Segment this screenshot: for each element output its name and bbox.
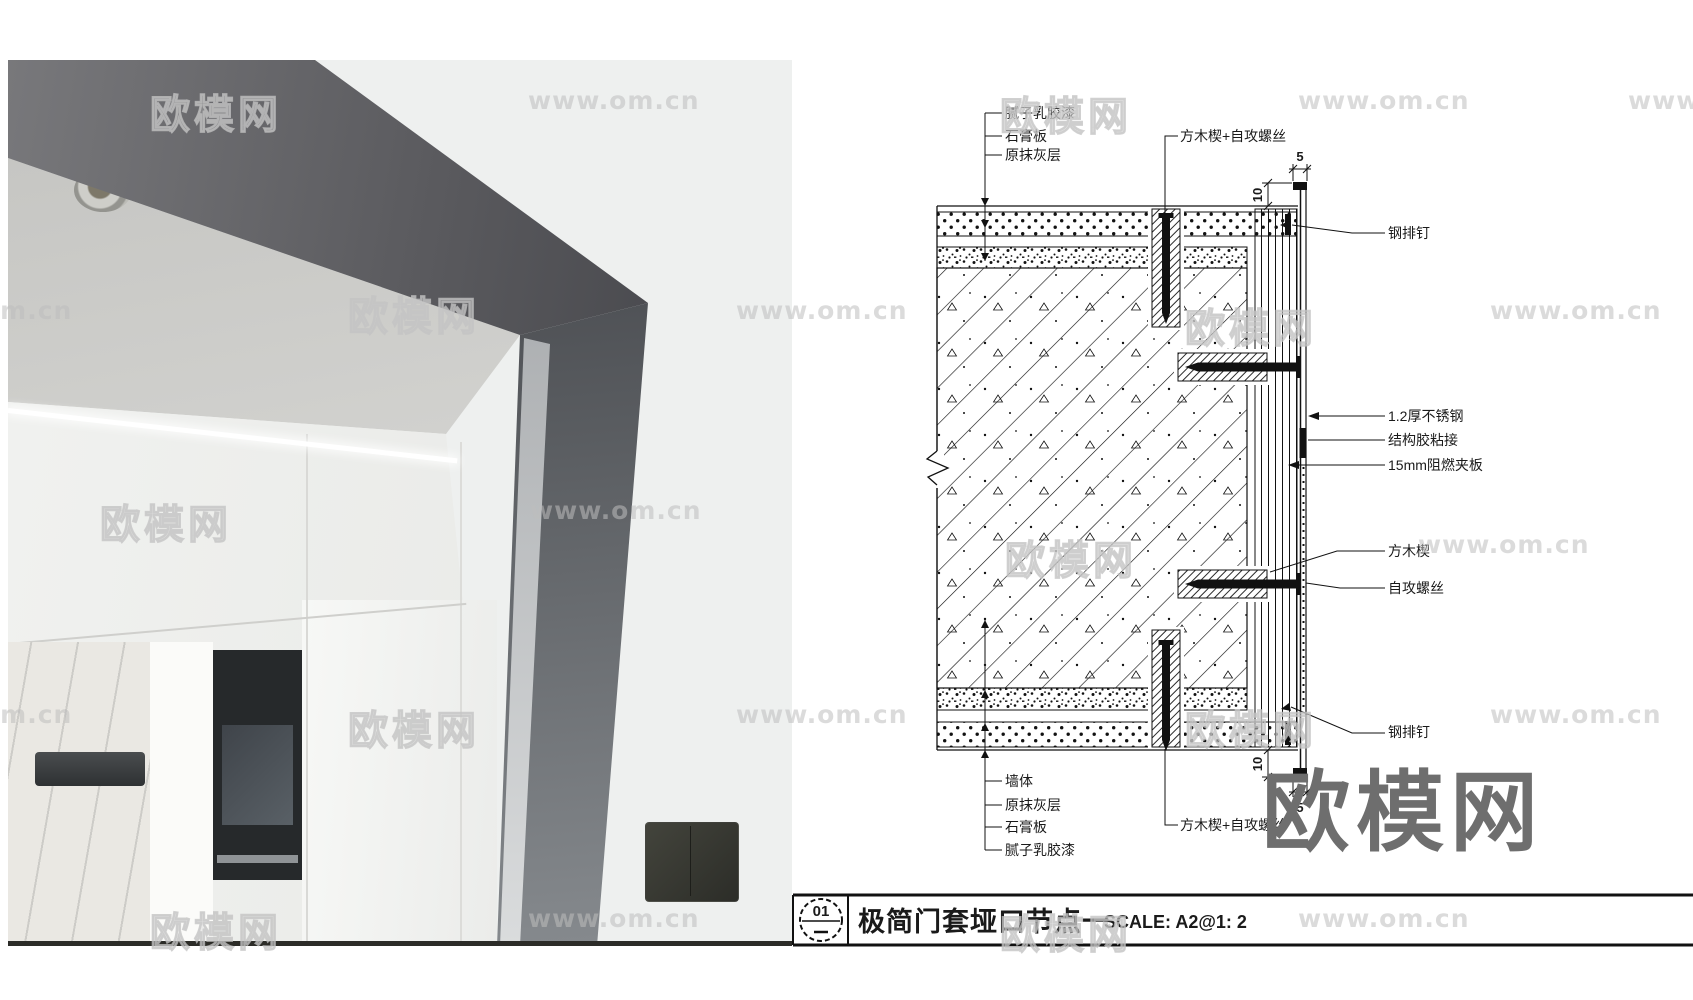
reference-photo	[8, 60, 792, 946]
dim-top-offset: 10	[1250, 188, 1265, 202]
dim-bottom-offset: 10	[1250, 757, 1265, 771]
detail-number: 01	[813, 903, 830, 920]
plywood-layer	[1255, 209, 1297, 747]
photo-cabinet-seam	[306, 434, 308, 946]
label-fire-plywood: 15mm阻燃夹板	[1388, 457, 1483, 473]
label-wood-wedge: 方木楔	[1388, 543, 1430, 559]
label-plaster-bottom: 原抹灰层	[1005, 797, 1061, 813]
photo-microwave-handle	[217, 855, 298, 863]
photo-cabinet-seam	[460, 442, 462, 946]
wall-section	[937, 206, 1298, 750]
photo-bottom-edge	[8, 941, 792, 946]
photo-tall-cabinet	[302, 600, 497, 946]
label-self-tap-screw: 自攻螺丝	[1388, 580, 1444, 596]
label-brad-nail-top: 钢排钉	[1388, 225, 1430, 241]
photo-light-switch-divider	[690, 826, 691, 896]
detail-title: 极简门套垭口节点一	[858, 906, 1110, 937]
label-brad-nail-bottom: 钢排钉	[1388, 724, 1430, 740]
photo-marble-backsplash	[8, 642, 150, 946]
structural-adhesive-pad	[1300, 428, 1307, 458]
photo-light-switch	[645, 822, 739, 902]
page: 10 5 10 5 腻子乳胶漆 石膏板 原抹灰层	[0, 0, 1693, 1000]
dim-bottom-return: 5	[1296, 800, 1303, 815]
detail-drawing: 10 5 10 5 腻子乳胶漆 石膏板 原抹灰层	[792, 55, 1693, 955]
label-putty-paint-bottom: 腻子乳胶漆	[1005, 842, 1075, 858]
label-putty-paint-top: 腻子乳胶漆	[1005, 105, 1075, 121]
label-stainless-steel: 1.2厚不锈钢	[1388, 408, 1463, 424]
title-block: 01 极简门套垭口节点一 SCALE: A2@1: 2	[793, 895, 1693, 945]
photo-niche-wall	[150, 642, 213, 946]
label-structural-glue: 结构胶粘接	[1388, 432, 1458, 448]
label-plaster-top: 原抹灰层	[1005, 147, 1061, 163]
photo-towel-bar	[35, 752, 145, 786]
label-wedge-screw-bottom: 方木楔+自攻螺丝	[1180, 817, 1286, 833]
label-wedge-screw-top: 方木楔+自攻螺丝	[1180, 128, 1286, 144]
label-gypsum-top: 石膏板	[1005, 128, 1047, 144]
detail-scale: SCALE: A2@1: 2	[1104, 912, 1247, 932]
label-wall-body: 墙体	[1005, 773, 1033, 789]
dim-top-return: 5	[1296, 149, 1303, 164]
label-gypsum-bottom: 石膏板	[1005, 819, 1047, 835]
photo-microwave-door	[222, 725, 293, 825]
